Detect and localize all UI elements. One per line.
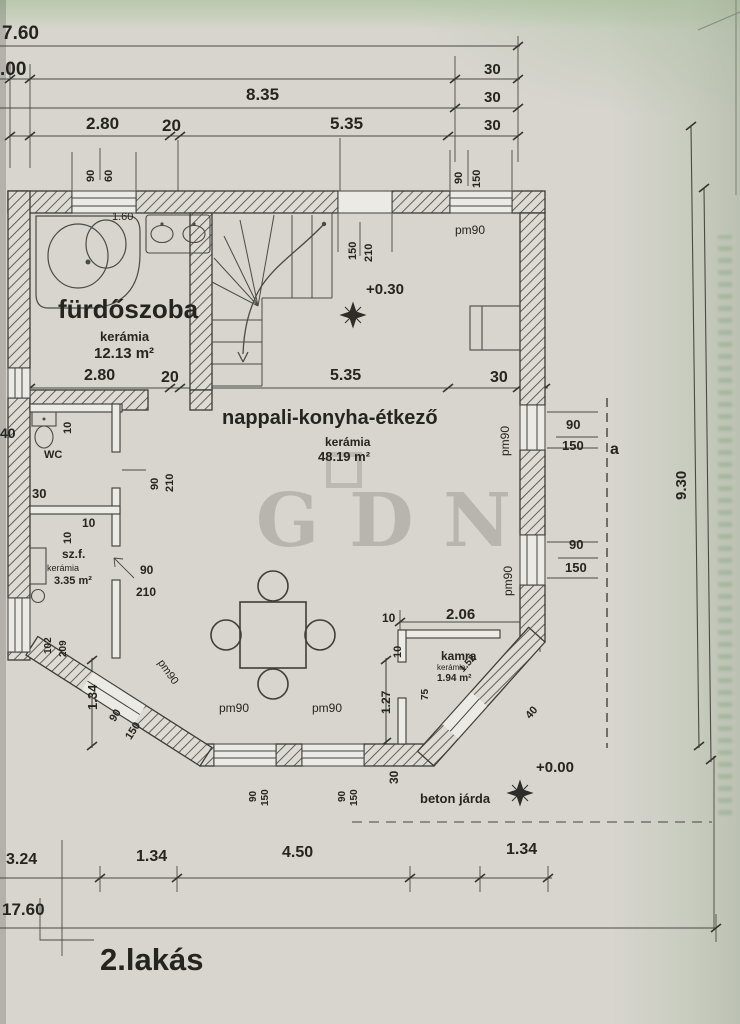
window-tag: 90 xyxy=(566,418,580,431)
dim-label: 4.50 xyxy=(282,845,313,861)
door-tag: 90 xyxy=(140,564,153,576)
staircase xyxy=(212,213,332,386)
dim-label: 10 xyxy=(393,646,404,658)
room-name: nappali-konyha-étkező xyxy=(222,408,438,428)
floorplan-scan: GDN xyxy=(0,0,740,1024)
dim-label: 2.80 xyxy=(84,368,115,384)
window-tag: 150 xyxy=(562,439,584,452)
room-name: sz.f. xyxy=(62,548,85,560)
parapet-tag: pm90 xyxy=(455,224,485,236)
dim-label: 7.60 xyxy=(2,24,39,43)
dim-label: 30 xyxy=(32,487,46,500)
window-tag: 90 xyxy=(454,172,465,184)
dim-label: 2.80 xyxy=(86,115,119,132)
room-area: 3.35 m² xyxy=(54,576,92,587)
dim-label: 10 xyxy=(63,532,74,544)
photo-edge-artifact xyxy=(698,0,740,195)
dim-label: 5.35 xyxy=(330,368,361,384)
parapet-tag: pm90 xyxy=(499,426,511,456)
dim-label: 30 xyxy=(484,90,501,105)
window-tag: 90 xyxy=(338,791,348,802)
door-tag: 210 xyxy=(165,474,176,492)
dim-label: 3.24 xyxy=(6,852,37,868)
door-tag: 90 xyxy=(150,478,161,490)
level-label: +0.30 xyxy=(366,282,404,297)
dim-label: 1.34 xyxy=(136,849,167,865)
dim-label: 8.35 xyxy=(246,86,279,103)
szf-fixtures xyxy=(30,548,46,603)
window-tag: 60 xyxy=(104,170,115,182)
dim-label: 40 xyxy=(0,426,16,440)
window-tag: 150 xyxy=(261,789,271,806)
room-area: 1.94 m² xyxy=(437,674,471,684)
room-area: 48.19 m² xyxy=(318,450,370,463)
window-tag: 90 xyxy=(86,170,97,182)
window-tag: 90 xyxy=(249,791,259,802)
room-area: 12.13 m² xyxy=(94,346,154,361)
room-material: kerámia xyxy=(100,330,149,343)
dim-label: 1.27 xyxy=(380,691,392,714)
dim-label: 30 xyxy=(484,118,501,133)
dim-label: 2.06 xyxy=(446,607,475,622)
door-tag: 210 xyxy=(364,244,375,262)
dim-label: 20 xyxy=(162,117,181,134)
parapet-tag: pm90 xyxy=(219,702,249,714)
room-name: fürdőszoba xyxy=(58,296,198,322)
door-tag: 75 xyxy=(421,689,431,700)
dim-label: 5.35 xyxy=(330,115,363,132)
window-tag: 90 xyxy=(569,538,583,551)
dim-label: 10 xyxy=(63,422,74,434)
level-label: +0.00 xyxy=(536,760,574,775)
section-label: a xyxy=(610,442,619,458)
plan-title: 2.lakás xyxy=(100,944,203,975)
room-material: kerámia xyxy=(47,564,79,573)
dim-label: 1.34 xyxy=(86,685,99,710)
dim-label: 20 xyxy=(161,370,179,386)
door-tag: 210 xyxy=(136,586,156,598)
dining-table xyxy=(211,571,335,699)
dim-label: 10 xyxy=(382,612,395,624)
tag-brackets xyxy=(40,148,598,940)
room-material: kerámia xyxy=(325,436,370,448)
fixture-dim: 1.60 xyxy=(112,212,133,223)
dim-label: 30 xyxy=(484,62,501,77)
dim-label: 9.30 xyxy=(674,471,689,500)
dim-label: 17.60 xyxy=(2,901,45,918)
parapet-tag: pm90 xyxy=(312,702,342,714)
dim-label: 10 xyxy=(82,517,95,529)
window-tag: 150 xyxy=(565,561,587,574)
kitchen-counter xyxy=(470,306,520,350)
room-name: WC xyxy=(44,450,62,461)
parapet-tag: pm90 xyxy=(502,566,514,596)
window-tag: 150 xyxy=(472,170,483,188)
window-tag: 209 xyxy=(59,640,69,657)
dim-label: 30 xyxy=(388,771,400,784)
door-tag: 150 xyxy=(348,242,359,260)
window-tag: 102 xyxy=(44,637,54,654)
dim-label: 1.34 xyxy=(506,842,537,858)
dim-label: .00 xyxy=(0,60,26,79)
dim-label: 30 xyxy=(490,370,508,386)
walkway-label: beton járda xyxy=(420,792,490,805)
toilet xyxy=(32,412,56,448)
plan-drawing xyxy=(0,0,740,1024)
window-tag: 150 xyxy=(350,789,360,806)
